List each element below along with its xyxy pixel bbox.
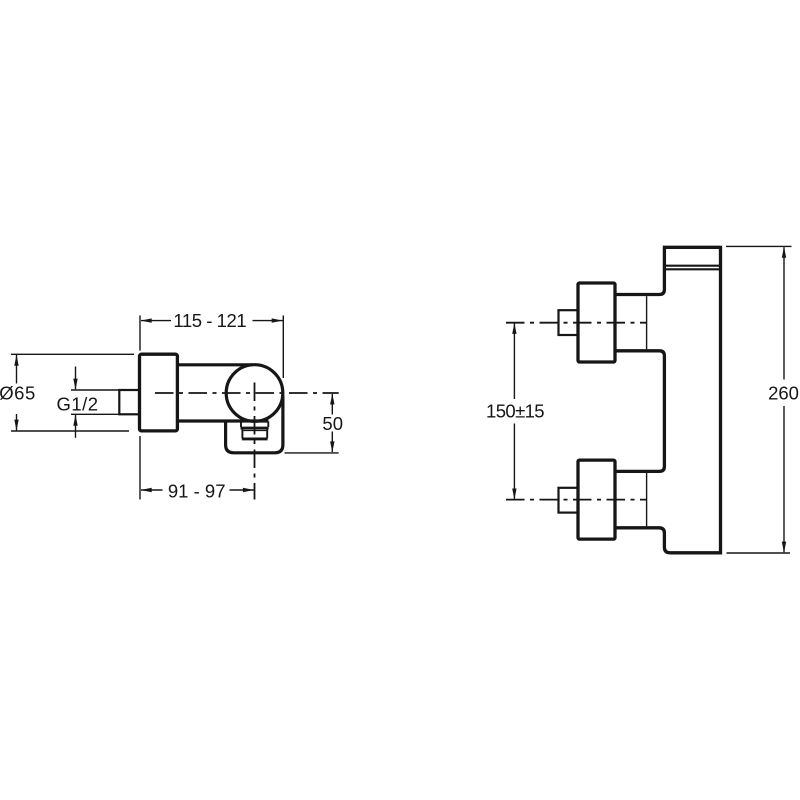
svg-text:260: 260 — [768, 383, 799, 404]
svg-text:Ø65: Ø65 — [0, 383, 36, 404]
svg-text:115 - 121: 115 - 121 — [173, 310, 246, 331]
svg-text:G1/2: G1/2 — [56, 394, 98, 415]
svg-text:91 - 97: 91 - 97 — [168, 480, 226, 501]
svg-text:150±15: 150±15 — [486, 401, 544, 422]
svg-text:50: 50 — [322, 413, 343, 434]
